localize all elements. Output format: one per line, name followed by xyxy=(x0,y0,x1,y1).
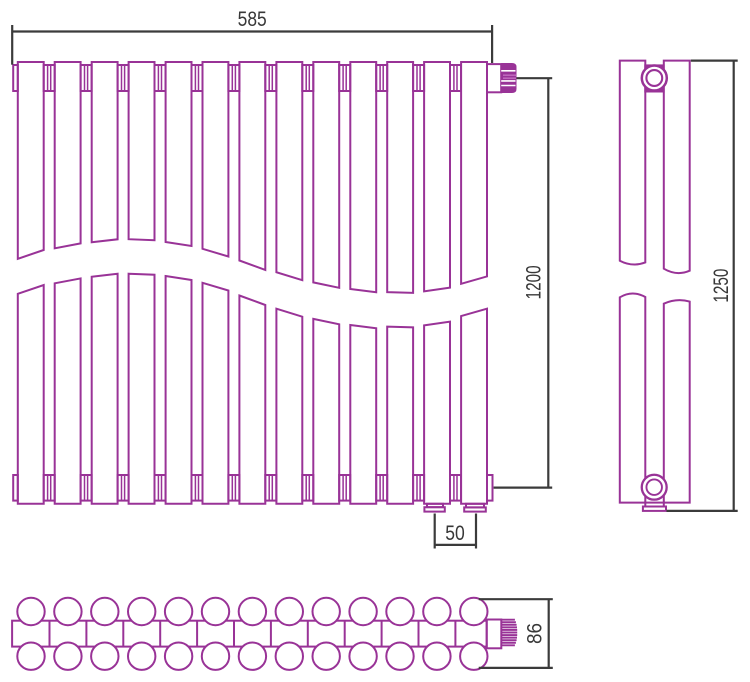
svg-text:1200: 1200 xyxy=(523,265,546,299)
svg-text:86: 86 xyxy=(523,623,546,644)
svg-text:1250: 1250 xyxy=(710,269,733,303)
svg-text:585: 585 xyxy=(238,8,267,31)
svg-text:50: 50 xyxy=(445,522,465,545)
